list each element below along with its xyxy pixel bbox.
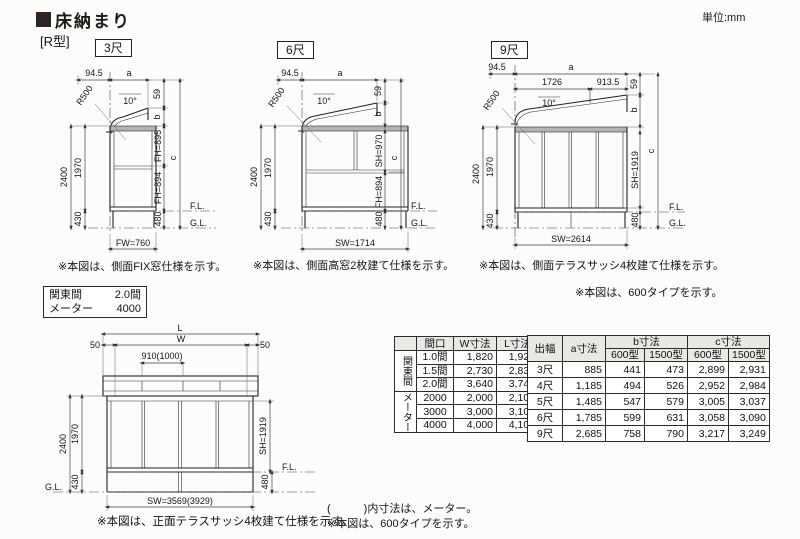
table-cell: 1,485 <box>563 394 606 410</box>
table-header-row: 出幅 a寸法 b寸法 c寸法 <box>528 336 770 349</box>
catalog-page: 床納まり [R型] 単位:mm 3尺 6尺 9尺 <box>0 0 800 539</box>
dim-offset-label: 94.5 <box>488 62 506 72</box>
dim-a-label: a <box>337 68 342 78</box>
dim-430-label: 430 <box>263 211 273 226</box>
section-drawing-3shaku: 94.5 a R500 10° 59 b FH=895 FH=894 480 c… <box>40 58 240 273</box>
table-cell: 547 <box>606 394 645 410</box>
table-row: 5尺 1,485 547 579 3,005 3,037 <box>528 394 770 410</box>
dim-b-label: b <box>629 107 639 112</box>
dim-c-label: c <box>646 148 656 153</box>
dim-1970-label: 1970 <box>485 157 495 177</box>
dim-59-label: 59 <box>629 79 639 89</box>
fl-label: F.L. <box>411 201 426 211</box>
gl-label: G.L. <box>190 218 207 228</box>
table-cell: 631 <box>645 410 688 426</box>
gl-label: G.L. <box>669 218 686 228</box>
table-row: 4000 4,000 4,100 <box>395 418 539 432</box>
table-cell: 4尺 <box>528 378 563 394</box>
table-row: 4尺 1,185 494 526 2,952 2,984 <box>528 378 770 394</box>
module-row-kanto: 関東間 2.0間 <box>49 288 141 302</box>
front-elevation-drawing: L W 50 50 910(1000) 2400 1970 430 SH=191… <box>20 323 350 518</box>
table-cell: 2.0間 <box>417 378 454 392</box>
module-row-meter: メーター 4000 <box>49 302 141 316</box>
module-value: 4000 <box>117 302 141 316</box>
dim-913-label: 913.5 <box>597 77 620 87</box>
table-cell: 599 <box>606 410 645 426</box>
structure-lines <box>493 65 685 238</box>
dim-1970-label: 1970 <box>70 424 80 444</box>
dim-480-label: 480 <box>260 474 270 489</box>
dim-480-label: 480 <box>630 212 640 227</box>
table-cell: 790 <box>645 426 688 442</box>
note-3shaku: ※本図は、側面FIX窓仕様を示す。 <box>58 258 226 274</box>
section-drawing-9shaku: 94.5 a 1726 913.5 R500 10° 59 b SH=1919 … <box>463 53 713 278</box>
page-title: 床納まり <box>36 7 131 32</box>
table-cell: 3,217 <box>688 426 729 442</box>
dim-a-label: a <box>126 68 131 78</box>
table-cell: 3,090 <box>729 410 770 426</box>
table-cell: 1,185 <box>563 378 606 394</box>
col-header: a寸法 <box>563 336 606 362</box>
module-label: 関東間 <box>49 288 82 302</box>
col-header: 間口 <box>417 337 454 351</box>
fl-label: F.L. <box>190 201 205 211</box>
table-cell: 3,640 <box>454 378 497 392</box>
dim-c-label: c <box>168 155 178 160</box>
table-cell: 9尺 <box>528 426 563 442</box>
table-cell: 473 <box>645 362 688 378</box>
table-cell: 2000 <box>417 391 454 405</box>
size-tag-6shaku: 6尺 <box>277 41 314 59</box>
dim-2400-label: 2400 <box>249 167 259 187</box>
table-cell: 2,931 <box>729 362 770 378</box>
width-label: SW=1714 <box>335 238 375 248</box>
radius-label: R500 <box>481 89 502 112</box>
dim-2400-label: 2400 <box>58 434 68 454</box>
col-subheader: 1500型 <box>645 349 688 362</box>
dim-W-label: W <box>177 334 186 344</box>
table-cell: 494 <box>606 378 645 394</box>
dim-L-label: L <box>177 323 182 333</box>
title-bullet-square <box>36 12 51 27</box>
table-cell: 2,984 <box>729 378 770 394</box>
table-cell: 2,952 <box>688 378 729 394</box>
table-cell: 1,820 <box>454 351 497 365</box>
dim-480-label: 480 <box>153 211 163 226</box>
dim-480-label: 480 <box>374 211 384 226</box>
series-label: [R型] <box>40 31 70 50</box>
table-cell: 2,730 <box>454 364 497 378</box>
table-row: 2.0間 3,640 3,740 <box>395 378 539 392</box>
width-label: FW=760 <box>116 238 150 248</box>
dimension-lines <box>261 75 408 253</box>
gl-label: G.L. <box>45 482 62 492</box>
table-cell: 1,785 <box>563 410 606 426</box>
note-600-type: ※本図は、600タイプを示す。 <box>575 284 722 300</box>
dim-offset-label: 94.5 <box>85 68 103 78</box>
table-cell: 579 <box>645 394 688 410</box>
dim-50-right-label: 50 <box>260 340 270 350</box>
table-row: 3尺 885 441 473 2,899 2,931 <box>528 362 770 378</box>
col-header: W寸法 <box>454 337 497 351</box>
angle-label: 10° <box>542 98 556 108</box>
table-cell: 4,000 <box>454 418 497 432</box>
dim-430-label: 430 <box>70 474 80 489</box>
dim-50-left-label: 50 <box>90 340 100 350</box>
col-header: b寸法 <box>606 336 688 349</box>
dim-2400-label: 2400 <box>59 167 69 187</box>
table-cell: 885 <box>563 362 606 378</box>
table-cell: 6尺 <box>528 410 563 426</box>
table-row: メーター 2000 2,000 2,100 <box>395 391 539 405</box>
col-subheader: 600型 <box>606 349 645 362</box>
table-row: 1.5間 2,730 2,830 <box>395 364 539 378</box>
module-label: メーター <box>49 302 93 316</box>
structure-lines <box>53 376 318 492</box>
table-cell: 1.5間 <box>417 364 454 378</box>
corner-cell <box>395 337 417 351</box>
dim-sh-label: SH=1919 <box>630 151 640 189</box>
radius-label: R500 <box>266 86 287 109</box>
spec-table: 間口 W寸法 L寸法 関東間 1.0間 1,820 1,920 1.5間 2,7… <box>394 336 539 433</box>
col-subheader: 1500型 <box>729 349 770 362</box>
group-label-meter: メーター <box>395 391 417 432</box>
table-cell: 2,685 <box>563 426 606 442</box>
dim-a-label: a <box>568 62 573 72</box>
dim-430-label: 430 <box>73 211 83 226</box>
table-header-row: 間口 W寸法 L寸法 <box>395 337 539 351</box>
table-cell: 4000 <box>417 418 454 432</box>
dim-59-label: 59 <box>373 86 383 96</box>
size-tag-3shaku: 3尺 <box>95 39 132 57</box>
dim-1970-label: 1970 <box>263 158 273 178</box>
table-cell: 526 <box>645 378 688 394</box>
radius-label: R500 <box>74 84 95 107</box>
dim-fh-upper-label: FH=895 <box>153 130 163 162</box>
module-value: 2.0間 <box>115 288 141 302</box>
table-cell: 2,000 <box>454 391 497 405</box>
col-subheader: 600型 <box>688 349 729 362</box>
table-cell: 3,058 <box>688 410 729 426</box>
footnote-600-type: ※本図は、600タイプを示す。 <box>327 515 474 531</box>
table-cell: 5尺 <box>528 394 563 410</box>
table-cell: 1.0間 <box>417 351 454 365</box>
depth-table: 出幅 a寸法 b寸法 c寸法 600型 1500型 600型 1500型 3尺 … <box>527 335 770 442</box>
dim-c-label: c <box>389 155 399 160</box>
dim-sh-label: SH=1919 <box>258 417 268 455</box>
note-6shaku: ※本図は、側面高窓2枚建て仕様を示す。 <box>253 257 454 273</box>
angle-label: 10° <box>317 96 331 106</box>
module-box: 関東間 2.0間 メーター 4000 <box>43 286 147 318</box>
fl-label: F.L. <box>669 202 684 212</box>
dim-sh-label: SH=970 <box>374 135 384 168</box>
table-row: 6尺 1,785 599 631 3,058 3,090 <box>528 410 770 426</box>
dim-1970-label: 1970 <box>73 158 83 178</box>
dim-fh-lower-label: FH=894 <box>153 172 163 204</box>
dim-bay-label: 910(1000) <box>141 351 182 361</box>
col-header: 出幅 <box>528 336 563 362</box>
table-cell: 3尺 <box>528 362 563 378</box>
table-cell: 441 <box>606 362 645 378</box>
fl-label: F.L. <box>282 462 297 472</box>
dim-2400-label: 2400 <box>471 164 481 184</box>
col-header: c寸法 <box>688 336 770 349</box>
width-label: SW=3569(3929) <box>147 496 213 506</box>
table-cell: 3,005 <box>688 394 729 410</box>
table-cell: 3,000 <box>454 405 497 419</box>
dim-fh-label: FH=894 <box>374 176 384 208</box>
section-drawing-6shaku: 94.5 a R500 10° 59 b SH=970 FH=894 480 c… <box>243 58 448 273</box>
group-label-kanto: 関東間 <box>395 351 417 392</box>
table-cell: 3,249 <box>729 426 770 442</box>
table-cell: 2,899 <box>688 362 729 378</box>
dim-59-label: 59 <box>152 89 162 99</box>
angle-label: 10° <box>123 96 137 106</box>
width-label: SW=2614 <box>551 234 591 244</box>
note-9shaku: ※本図は、側面テラスサッシ4枚建て仕様を示す。 <box>479 257 724 273</box>
unit-label: 単位:mm <box>702 9 745 25</box>
dim-b-label: b <box>152 114 162 119</box>
gl-label: G.L. <box>411 218 428 228</box>
table-cell: 3,037 <box>729 394 770 410</box>
page-title-text: 床納まり <box>55 7 131 32</box>
table-cell: 3000 <box>417 405 454 419</box>
dim-offset-label: 94.5 <box>281 68 299 78</box>
table-row: 9尺 2,685 758 790 3,217 3,249 <box>528 426 770 442</box>
dim-1726-label: 1726 <box>542 77 562 87</box>
note-front: ※本図は、正面テラスサッシ4枚建て仕様を示す。 <box>97 513 353 529</box>
dim-430-label: 430 <box>485 213 495 228</box>
table-cell: 758 <box>606 426 645 442</box>
table-row: 関東間 1.0間 1,820 1,920 <box>395 351 539 365</box>
footnote-paren: ( )内寸法は、メーター。 <box>327 500 477 516</box>
dim-b-label: b <box>373 111 383 116</box>
table-row: 3000 3,000 3,100 <box>395 405 539 419</box>
